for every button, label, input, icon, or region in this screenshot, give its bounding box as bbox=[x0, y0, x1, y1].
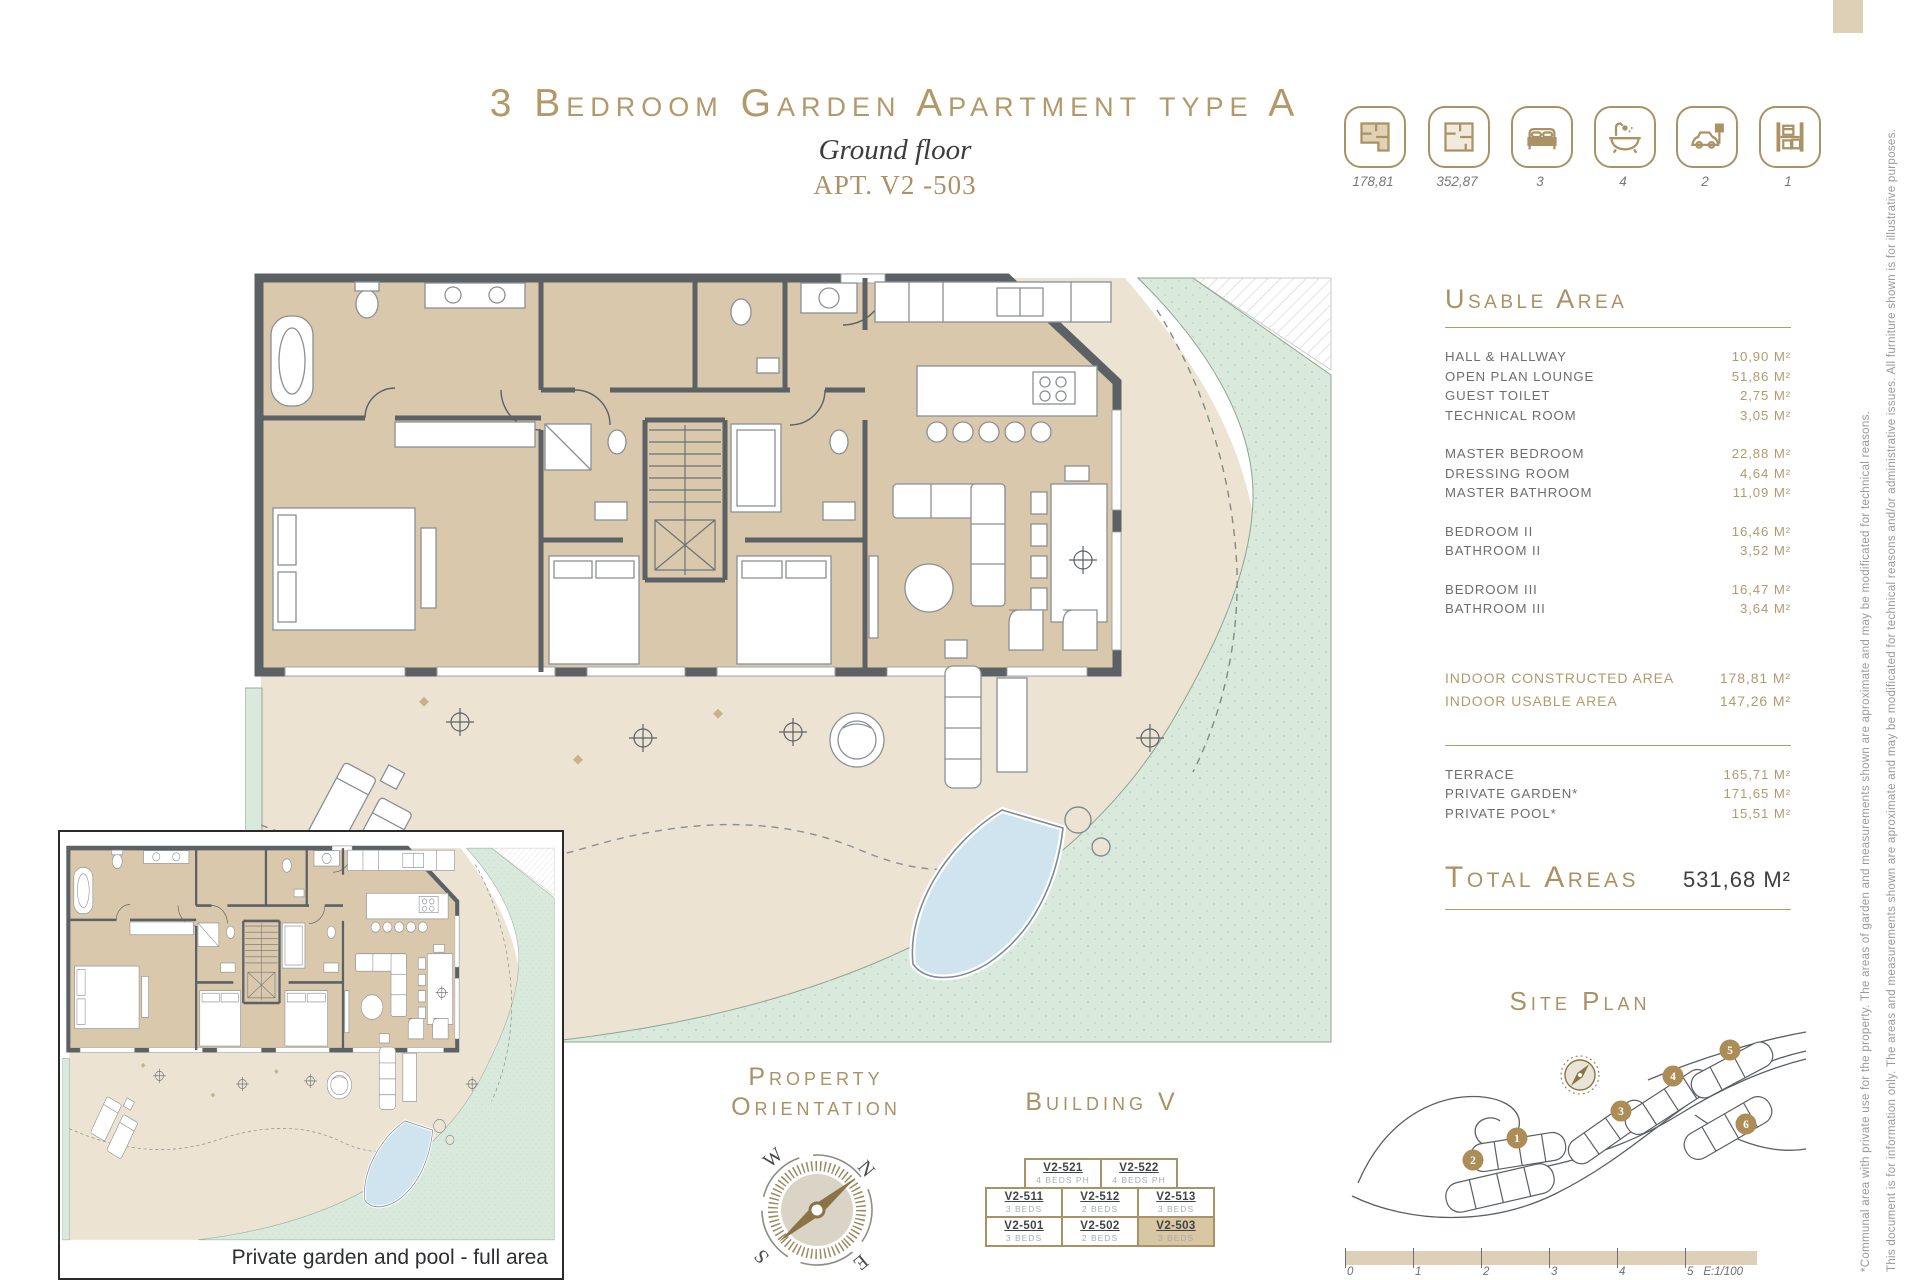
svg-text:2: 2 bbox=[1470, 1155, 1476, 1167]
building-heading: Building V bbox=[985, 1088, 1219, 1117]
area-label: OPEN PLAN LOUNGE bbox=[1445, 367, 1594, 387]
site-marker-1: 1 bbox=[1507, 1128, 1528, 1149]
total-areas-value: 531,68 M² bbox=[1683, 867, 1791, 893]
area-table: Usable Area HALL & HALLWAY10,90 M² OPEN … bbox=[1445, 284, 1791, 910]
parking-icon: P bbox=[1676, 106, 1738, 168]
compass-e: E bbox=[849, 1250, 873, 1275]
scale-tick-1: 1 bbox=[1415, 1266, 1421, 1278]
area-label: GUEST TOILET bbox=[1445, 386, 1550, 406]
area-group-1: HALL & HALLWAY10,90 M² OPEN PLAN LOUNGE5… bbox=[1445, 347, 1791, 425]
outdoor-label: PRIVATE POOL* bbox=[1445, 804, 1557, 824]
scale-tick-3: 3 bbox=[1551, 1266, 1557, 1278]
usable-area-heading: Usable Area bbox=[1445, 284, 1791, 315]
area-label: MASTER BEDROOM bbox=[1445, 444, 1584, 464]
area-label: BATHROOM II bbox=[1445, 541, 1541, 561]
scale-tick-0: 0 bbox=[1347, 1266, 1353, 1278]
area-group-4: BEDROOM III16,47 M² BATHROOM III3,64 M² bbox=[1445, 580, 1791, 619]
area-value: 22,88 M² bbox=[1732, 444, 1791, 464]
svg-text:P: P bbox=[1717, 124, 1722, 133]
site-compass bbox=[1561, 1056, 1599, 1094]
area-value: 16,46 M² bbox=[1732, 522, 1791, 542]
area-label: MASTER BATHROOM bbox=[1445, 483, 1592, 503]
svg-text:4: 4 bbox=[1670, 1071, 1676, 1083]
outdoor-value: 171,65 M² bbox=[1724, 784, 1791, 804]
unit-cell-v2-513: V2-5133 BEDS bbox=[1137, 1187, 1215, 1218]
svg-text:5: 5 bbox=[1727, 1045, 1733, 1057]
area-group-2: MASTER BEDROOM22,88 M² DRESSING ROOM4,64… bbox=[1445, 444, 1791, 503]
total-area-value: 352,87 bbox=[1417, 174, 1497, 189]
unit-cell-v2-502: V2-5022 BEDS bbox=[1061, 1216, 1139, 1247]
area-label: BEDROOM III bbox=[1445, 580, 1538, 600]
scale-tick-4: 4 bbox=[1619, 1266, 1625, 1278]
indoor-value: 147,26 M² bbox=[1720, 690, 1791, 713]
svg-text:6: 6 bbox=[1743, 1119, 1749, 1131]
unit-cell-v2-511: V2-5113 BEDS bbox=[985, 1187, 1063, 1218]
unit-cell-v2-501: V2-5013 BEDS bbox=[985, 1216, 1063, 1247]
storage-icon bbox=[1759, 106, 1821, 168]
storage-count: 1 bbox=[1748, 174, 1828, 189]
scale-tick-2: 2 bbox=[1483, 1266, 1489, 1278]
area-label: DRESSING ROOM bbox=[1445, 464, 1570, 484]
total-plan-icon bbox=[1428, 106, 1490, 168]
outdoor-areas: TERRACE165,71 M² PRIVATE GARDEN*171,65 M… bbox=[1445, 765, 1791, 824]
compass-s: S bbox=[752, 1245, 774, 1268]
compass-w: W bbox=[759, 1143, 788, 1172]
property-orientation-heading: Property Orientation bbox=[690, 1062, 942, 1122]
indoor-totals: INDOOR CONSTRUCTED AREA178,81 M² INDOOR … bbox=[1445, 667, 1791, 713]
floorplan-sheet: 3 Bedroom Garden Apartment type A Ground… bbox=[0, 0, 1920, 1280]
orientation-compass: N E S W bbox=[752, 1140, 882, 1280]
constructed-area-value: 178,81 bbox=[1333, 174, 1413, 189]
page-title: 3 Bedroom Garden Apartment type A bbox=[310, 82, 1480, 126]
disclaimer-line-2: *Communal area with private use for the … bbox=[1860, 411, 1872, 1272]
scale-tick-5: 5 bbox=[1687, 1266, 1693, 1278]
outdoor-value: 15,51 M² bbox=[1732, 804, 1791, 824]
svg-text:3: 3 bbox=[1618, 1106, 1624, 1118]
indoor-label: INDOOR USABLE AREA bbox=[1445, 690, 1618, 713]
unit-cell-v2-522: V2-5224 BEDS PH bbox=[1100, 1158, 1178, 1189]
area-value: 10,90 M² bbox=[1732, 347, 1791, 367]
total-areas-heading: Total Areas bbox=[1445, 861, 1639, 895]
bath-icon bbox=[1594, 106, 1656, 168]
total-areas-row: Total Areas 531,68 M² bbox=[1445, 861, 1791, 895]
apartment-number: APT. V2 -503 bbox=[310, 170, 1480, 201]
building-stack: V2-5214 BEDS PH V2-5224 BEDS PH V2-5113 … bbox=[985, 1158, 1215, 1247]
inset-floorplan bbox=[62, 844, 556, 1244]
parking-count: 2 bbox=[1665, 174, 1745, 189]
site-marker-3: 3 bbox=[1611, 1101, 1632, 1122]
bedrooms-count: 3 bbox=[1500, 174, 1580, 189]
area-value: 11,09 M² bbox=[1733, 483, 1791, 503]
outdoor-label: PRIVATE GARDEN* bbox=[1445, 784, 1578, 804]
area-label: HALL & HALLWAY bbox=[1445, 347, 1567, 367]
inset-caption: Private garden and pool - full area bbox=[232, 1246, 548, 1270]
outdoor-label: TERRACE bbox=[1445, 765, 1514, 785]
unit-cell-v2-521: V2-5214 BEDS PH bbox=[1024, 1158, 1102, 1189]
scale-bar: 0 1 2 3 4 5 E:1/100 bbox=[1345, 1251, 1757, 1265]
area-value: 3,64 M² bbox=[1740, 599, 1791, 619]
unit-cell-v2-503-highlighted: V2-5033 BEDS bbox=[1137, 1216, 1215, 1247]
indoor-value: 178,81 M² bbox=[1720, 667, 1791, 690]
area-label: BEDROOM II bbox=[1445, 522, 1533, 542]
area-value: 51,86 M² bbox=[1732, 367, 1791, 387]
area-label: TECHNICAL ROOM bbox=[1445, 406, 1577, 426]
indoor-label: INDOOR CONSTRUCTED AREA bbox=[1445, 667, 1674, 690]
site-marker-6: 6 bbox=[1736, 1114, 1757, 1135]
area-group-3: BEDROOM II16,46 M² BATHROOM II3,52 M² bbox=[1445, 522, 1791, 561]
area-value: 3,52 M² bbox=[1740, 541, 1791, 561]
site-plan-heading: Site Plan bbox=[1350, 986, 1810, 1017]
site-marker-5: 5 bbox=[1720, 1040, 1741, 1061]
area-value: 3,05 M² bbox=[1740, 406, 1791, 426]
page-edge-block bbox=[1833, 0, 1863, 33]
floor-subtitle: Ground floor bbox=[310, 134, 1480, 167]
outdoor-value: 165,71 M² bbox=[1724, 765, 1791, 785]
constructed-plan-icon bbox=[1344, 106, 1406, 168]
bathrooms-count: 4 bbox=[1583, 174, 1663, 189]
site-marker-2: 2 bbox=[1463, 1150, 1484, 1171]
unit-cell-v2-512: V2-5122 BEDS bbox=[1061, 1187, 1139, 1218]
site-marker-4: 4 bbox=[1663, 1066, 1684, 1087]
area-value: 16,47 M² bbox=[1732, 580, 1791, 600]
garden-inset-panel: Private garden and pool - full area bbox=[58, 830, 564, 1280]
disclaimer-line-1: This document is for information only. T… bbox=[1886, 129, 1898, 1272]
scale-ratio: E:1/100 bbox=[1703, 1266, 1743, 1278]
area-value: 4,64 M² bbox=[1740, 464, 1791, 484]
compass-n: N bbox=[853, 1156, 879, 1181]
area-label: BATHROOM III bbox=[1445, 599, 1546, 619]
site-plan-map: 1 2 3 4 5 6 bbox=[1350, 1018, 1810, 1243]
site-buildings bbox=[1443, 1038, 1777, 1215]
svg-text:1: 1 bbox=[1514, 1133, 1520, 1145]
area-value: 2,75 M² bbox=[1740, 386, 1791, 406]
bed-icon bbox=[1511, 106, 1573, 168]
